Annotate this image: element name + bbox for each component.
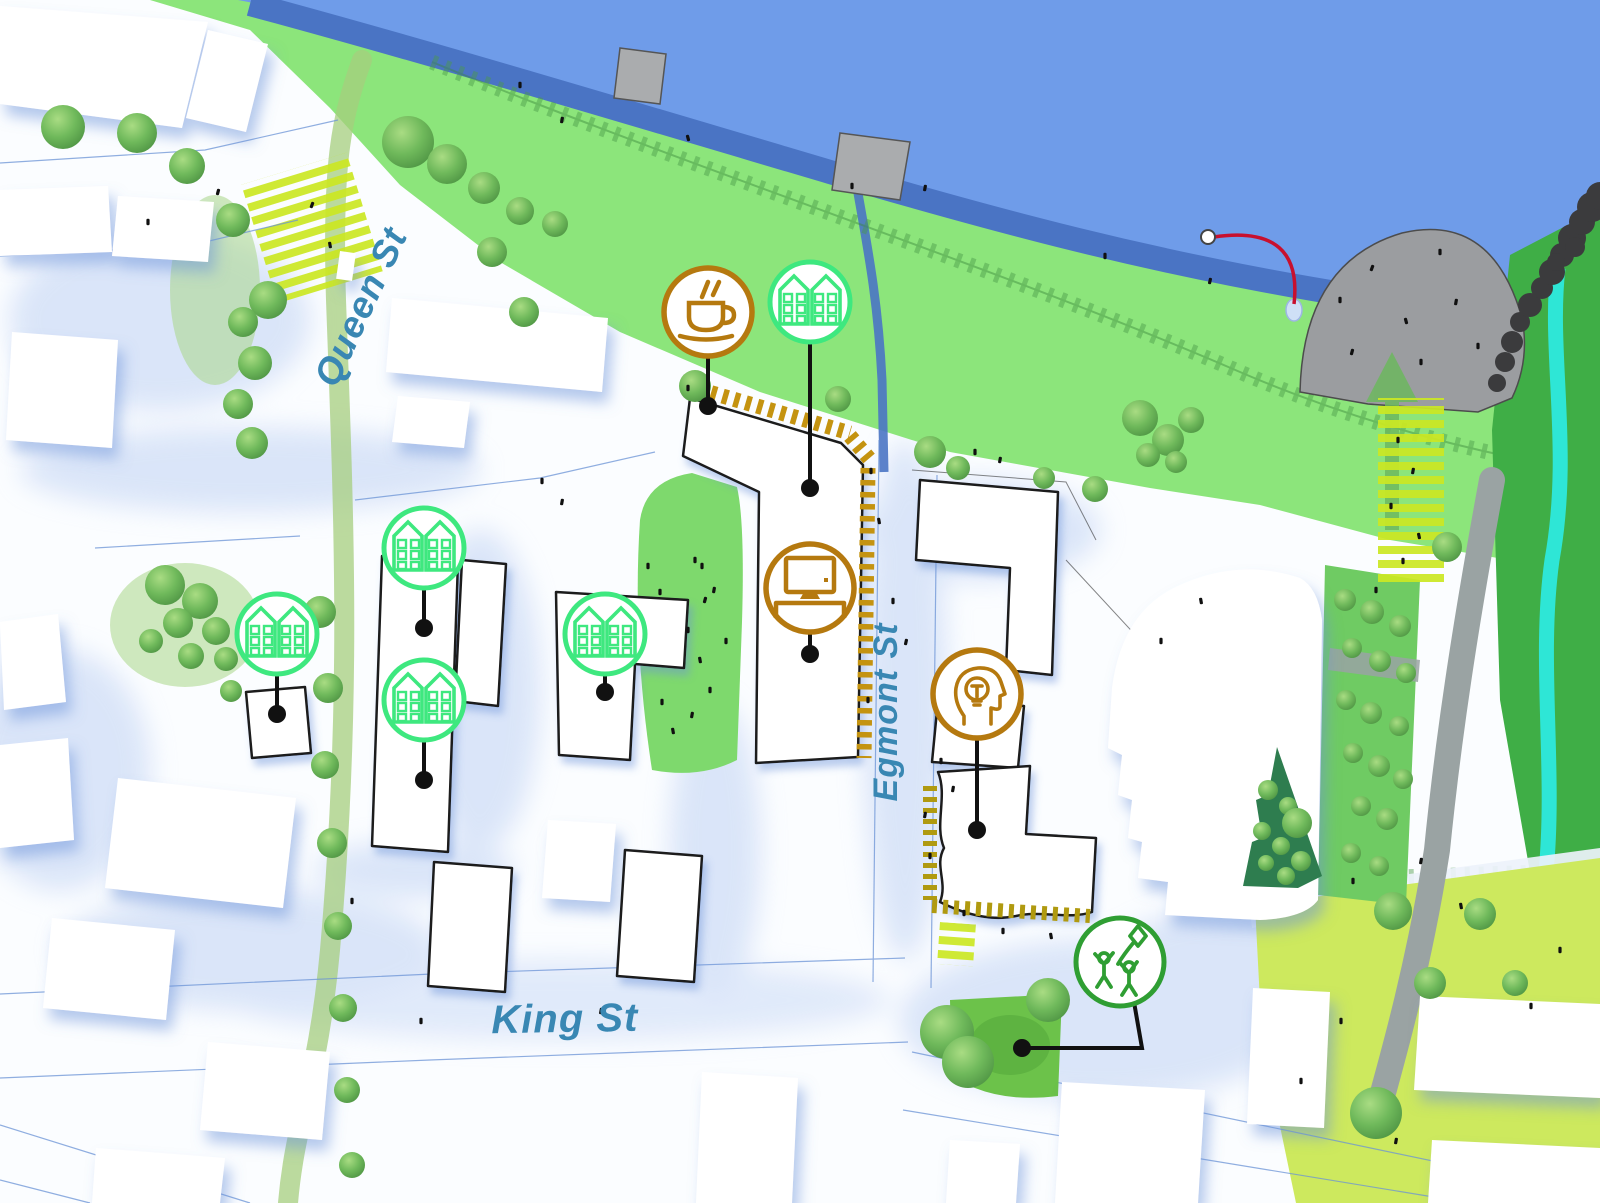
street-label-egmont: Egmont St: [867, 622, 905, 802]
leader-dot: [801, 645, 819, 663]
tree: [1033, 467, 1055, 489]
tree: [223, 389, 253, 419]
pedestrian-speck: [1476, 343, 1479, 349]
pedestrian-speck: [1351, 878, 1354, 884]
leader-dot: [268, 705, 286, 723]
pedestrian-speck: [1339, 1018, 1342, 1024]
tree: [382, 116, 434, 168]
pedestrian-speck: [1396, 437, 1399, 443]
tree: [228, 307, 258, 337]
tree: [329, 994, 357, 1022]
tree: [1277, 867, 1295, 885]
tree: [1389, 716, 1409, 736]
masterplan-svg: Queen St King St Egmont St: [0, 0, 1600, 1203]
tree: [1351, 796, 1371, 816]
tree: [169, 148, 205, 184]
tree: [117, 113, 157, 153]
tree: [542, 211, 568, 237]
tree: [1376, 808, 1398, 830]
tree: [914, 436, 946, 468]
pedestrian-speck: [660, 699, 663, 705]
marker-ring: [237, 594, 317, 674]
tree: [477, 237, 507, 267]
tree: [1414, 967, 1446, 999]
pedestrian-speck: [146, 219, 149, 225]
pier: [832, 133, 910, 200]
tree: [1369, 650, 1391, 672]
tree: [1082, 476, 1108, 502]
tree: [1026, 978, 1070, 1022]
pedestrian-speck: [540, 478, 543, 484]
map-canvas: Queen St King St Egmont St: [0, 0, 1600, 1203]
tree: [1272, 837, 1290, 855]
leader-dot: [596, 683, 614, 701]
tree: [1334, 589, 1356, 611]
leader-dot: [415, 619, 433, 637]
tree: [324, 912, 352, 940]
pedestrian-speck: [973, 449, 976, 455]
tree: [139, 629, 163, 653]
pier: [614, 48, 666, 104]
tree: [1336, 690, 1356, 710]
tree: [1178, 407, 1204, 433]
leader-dot: [699, 397, 717, 415]
tree: [1393, 769, 1413, 789]
tree: [1360, 600, 1384, 624]
tree: [1258, 780, 1278, 800]
tree: [1165, 451, 1187, 473]
pedestrian-speck: [708, 687, 711, 693]
tree: [1502, 970, 1528, 996]
tree: [238, 346, 272, 380]
tree: [506, 197, 534, 225]
pedestrian-speck: [686, 627, 689, 633]
crosswalk-small: [937, 922, 976, 966]
pedestrian-speck: [891, 598, 894, 604]
pedestrian-speck: [1159, 638, 1162, 644]
pedestrian-speck: [928, 853, 931, 859]
pedestrian-speck: [1001, 928, 1004, 934]
tree: [825, 386, 851, 412]
pedestrian-speck: [1103, 253, 1106, 259]
pedestrian-speck: [686, 385, 689, 391]
tree: [216, 203, 250, 237]
marker-ring: [770, 262, 850, 342]
tree: [1369, 856, 1389, 876]
tree: [1258, 855, 1274, 871]
tree: [1350, 1087, 1402, 1139]
tree: [1136, 443, 1160, 467]
pedestrian-speck: [939, 758, 942, 764]
pedestrian-speck: [1374, 587, 1377, 593]
tree: [1374, 892, 1412, 930]
tree: [1342, 638, 1362, 658]
pedestrian-speck: [1299, 1078, 1302, 1084]
pedestrian-speck: [700, 563, 703, 569]
tree: [41, 105, 85, 149]
tree: [1389, 615, 1411, 637]
leader-dot: [1013, 1039, 1031, 1057]
pedestrian-speck: [1338, 297, 1341, 303]
tree: [236, 427, 268, 459]
tree: [214, 647, 238, 671]
tree: [509, 297, 539, 327]
tree: [317, 828, 347, 858]
tree: [311, 751, 339, 779]
pedestrian-speck: [646, 563, 649, 569]
pedestrian-speck: [693, 557, 696, 563]
tree: [313, 673, 343, 703]
pedestrian-speck: [724, 638, 727, 644]
tree: [1343, 743, 1363, 763]
tree: [163, 608, 193, 638]
tree: [1464, 898, 1496, 930]
pedestrian-speck: [350, 898, 353, 904]
tree: [427, 144, 467, 184]
tree: [1341, 843, 1361, 863]
tree: [1122, 400, 1158, 436]
pedestrian-speck: [1529, 1003, 1532, 1009]
pedestrian-speck: [1419, 359, 1422, 365]
crosswalk-east: [1378, 398, 1444, 584]
tree: [1291, 851, 1311, 871]
building-central-lower: [617, 850, 702, 982]
tree: [946, 456, 970, 480]
tree: [339, 1152, 365, 1178]
path-endpoint-dot: [1201, 230, 1215, 244]
pedestrian-speck: [658, 589, 661, 595]
pedestrian-speck: [1438, 249, 1441, 255]
tree: [1253, 822, 1271, 840]
tree: [202, 617, 230, 645]
pedestrian-speck: [419, 1018, 422, 1024]
pedestrian-speck: [850, 183, 853, 189]
leader-dot: [415, 771, 433, 789]
marker-ring: [384, 660, 464, 740]
tree: [334, 1077, 360, 1103]
street-label-king: King St: [491, 996, 639, 1043]
tree: [1282, 808, 1312, 838]
tree: [178, 643, 204, 669]
pedestrian-speck: [1401, 558, 1404, 564]
tree: [145, 565, 185, 605]
pedestrian-speck: [1558, 947, 1561, 953]
tree: [468, 172, 500, 204]
pedestrian-speck: [962, 910, 965, 916]
tree: [1432, 532, 1462, 562]
tree: [220, 680, 242, 702]
building-west-lower: [428, 862, 512, 992]
tree: [1368, 755, 1390, 777]
tree: [1396, 663, 1416, 683]
marker-ring: [384, 508, 464, 588]
pedestrian-speck: [869, 468, 872, 474]
tree: [942, 1036, 994, 1088]
leader-dot: [968, 821, 986, 839]
leader-dot: [801, 479, 819, 497]
pedestrian-speck: [518, 82, 521, 88]
tree: [1360, 702, 1382, 724]
marker-ring: [565, 594, 645, 674]
pedestrian-speck: [1389, 503, 1392, 509]
